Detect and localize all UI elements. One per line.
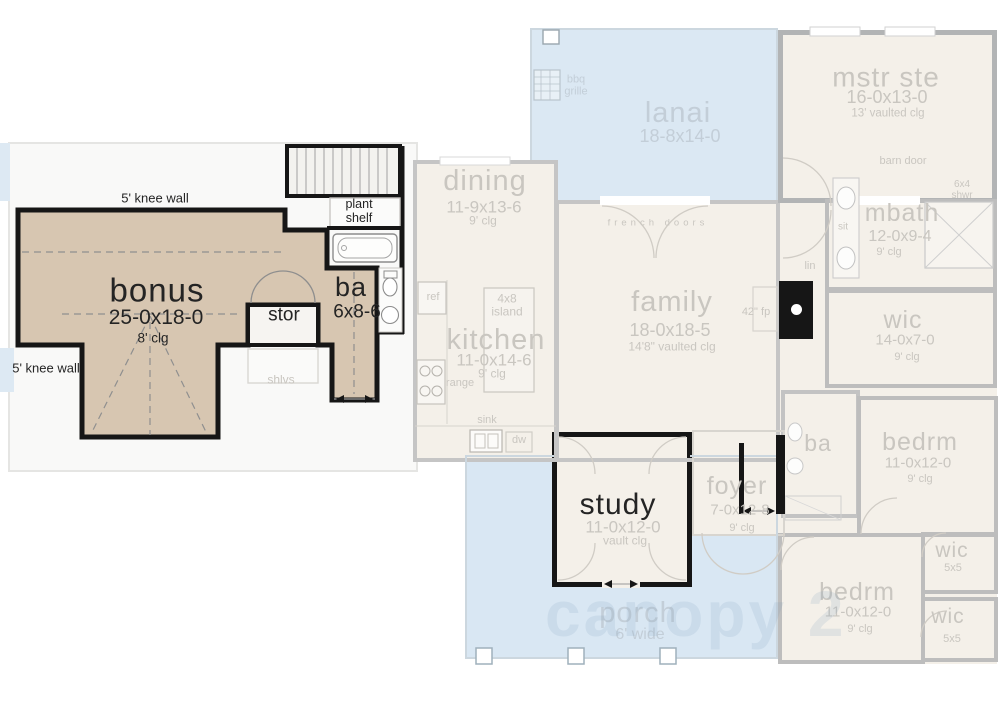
bonus-clg: 8' clg	[137, 330, 168, 345]
mbath-dims: 12-0x9-4	[868, 228, 931, 246]
sit-label: sit	[838, 221, 848, 232]
wic-hall-label: wic	[883, 306, 922, 334]
shwr-line1: 6x4	[951, 179, 972, 190]
porch-edge-bottom	[465, 657, 778, 659]
lanai-label: lanai	[645, 97, 711, 129]
stor-label: stor	[268, 304, 300, 325]
wic-small-2-label: wic	[931, 605, 964, 629]
mstr-clg: 13' vaulted clg	[851, 108, 924, 121]
kitchen-clg: 9' clg	[478, 367, 506, 380]
plant-shelf-line2: shelf	[345, 211, 372, 225]
mstr-dims: 16-0x13-0	[846, 87, 927, 107]
study-clg: vault clg	[603, 534, 647, 547]
lanai-dims: 18-8x14-0	[639, 126, 720, 146]
wic-small-1-dims: 5x5	[944, 562, 962, 574]
island-label: 4x8 island	[491, 293, 522, 320]
bedrm-right-clg: 9' clg	[907, 473, 932, 485]
french-doors-label: french doors	[608, 219, 709, 230]
family-clg: 14'8" vaulted clg	[628, 340, 715, 353]
family-dims: 18-0x18-5	[629, 320, 710, 340]
plant-shelf-label: plant shelf	[345, 197, 372, 225]
foyer-closet-wall-right	[776, 435, 785, 514]
floor-plan: 5' knee wall 5' knee wall bonus 25-0x18-…	[0, 0, 1000, 704]
barn-door-label: barn door	[879, 155, 926, 167]
ba-upper-dims: 6x8-6	[333, 301, 381, 322]
foyer-dims: 7-0x12-8	[710, 503, 769, 520]
foyer-label: foyer	[707, 472, 768, 500]
dw-label: dw	[512, 434, 526, 446]
island-line1: 4x8	[491, 293, 522, 306]
plant-shelf-line1: plant	[345, 197, 372, 211]
ba2-label: ba	[804, 431, 832, 457]
family-label: family	[631, 286, 713, 318]
dining-clg: 9' clg	[469, 214, 497, 227]
bonus-dims: 25-0x18-0	[109, 306, 204, 330]
lin-label: lin	[804, 260, 815, 272]
range-label: range	[446, 377, 474, 389]
bbq-line1: bbq	[564, 74, 587, 86]
bbq-grille-label: bbq grille	[564, 74, 587, 99]
foyer-clg: 9' clg	[729, 522, 754, 534]
bedrm-bottom-clg: 9' clg	[847, 623, 872, 635]
ref-label: ref	[427, 291, 440, 303]
bonus-label: bonus	[110, 273, 205, 310]
bbq-line2: grille	[564, 86, 587, 98]
porch-edge-top-right	[690, 455, 778, 457]
sink-label: sink	[477, 414, 497, 426]
mbath-label: mbath	[865, 199, 939, 227]
watermark: canopy 2	[545, 577, 846, 651]
wic-hall-dims: 14-0x7-0	[875, 333, 934, 350]
island-line2: island	[491, 306, 522, 319]
wic-small-1-label: wic	[935, 539, 968, 563]
dining-label: dining	[443, 165, 526, 197]
porch-edge-top-left	[465, 455, 554, 457]
shwr-label: 6x4 shwr	[951, 179, 972, 201]
roof-patch-top-left	[0, 143, 10, 201]
wic-small-2-dims: 5x5	[943, 633, 961, 645]
mbath-clg: 9' clg	[876, 246, 901, 258]
fireplace-label: 42" fp	[742, 306, 770, 318]
bedrm-right-label: bedrm	[882, 428, 958, 456]
porch-edge-left	[465, 455, 467, 659]
shlvs-label: shlvs	[267, 373, 294, 386]
knee-wall-top-label: 5' knee wall	[121, 192, 189, 207]
ba-upper-label: ba	[335, 272, 367, 302]
wic-hall-clg: 9' clg	[894, 351, 919, 363]
shwr-line2: shwr	[951, 190, 972, 201]
knee-wall-left-label: 5' knee wall	[12, 362, 80, 377]
fireplace-circle	[791, 304, 802, 315]
bedrm-right-dims: 11-0x12-0	[885, 456, 951, 473]
